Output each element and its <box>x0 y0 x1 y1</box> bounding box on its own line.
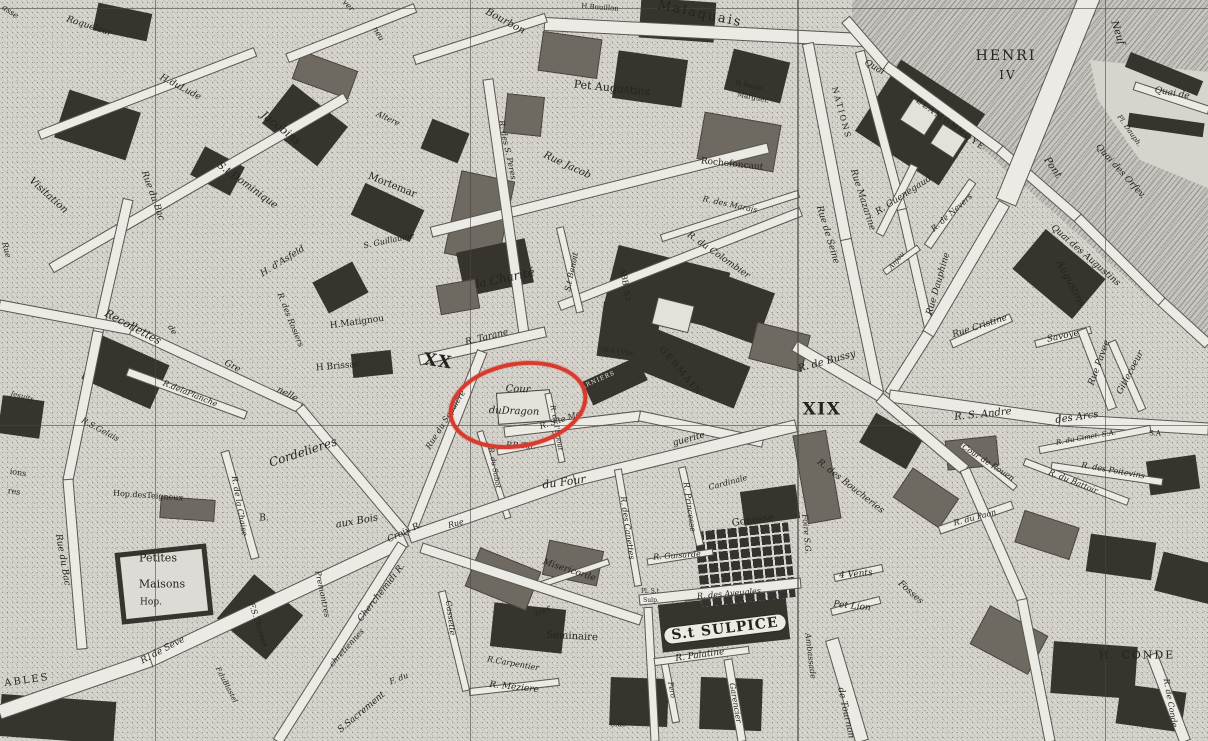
map-label: Mortemar <box>366 172 417 200</box>
map-label: duDragon <box>489 406 540 418</box>
map-label: Augustins <box>1054 259 1087 308</box>
map-label: XX <box>422 352 453 373</box>
map-label: Rue Cristine <box>951 314 1008 340</box>
map-label: Jacobins <box>259 109 303 147</box>
map-label: guerite <box>672 431 706 448</box>
map-label: Ambassade <box>803 633 817 680</box>
map-label: Rue <box>0 241 12 258</box>
map-label: de Tournon <box>835 687 855 740</box>
map-label: NATIONS <box>830 86 852 140</box>
map-canvas: asseRoquelaurH.duLudeVisitationRueS.t Do… <box>0 0 1208 741</box>
map-label: Cordelieres <box>268 435 339 468</box>
map-label: CHARNIERS <box>570 370 617 395</box>
map-label: du Four <box>542 474 587 491</box>
map-label: Garencier <box>728 682 743 723</box>
map-label: R. des Boucheries <box>815 458 885 516</box>
map-label: des Arcs <box>1055 410 1099 426</box>
map-label: Rue du Bac <box>139 170 165 222</box>
map-label: aux Bois <box>335 513 379 530</box>
map-label: Bourbon <box>483 7 526 36</box>
map-label: R. des Poitevins <box>1081 461 1146 480</box>
map-label: Rue du Sepulcre <box>425 389 467 450</box>
map-label: Rue Pavee <box>1088 339 1113 387</box>
map-label: R. du Paon <box>953 508 997 527</box>
map-label: H. d'Asfeld <box>259 245 306 279</box>
map-label: H. CONDE <box>1099 650 1176 661</box>
map-label: R. du Sabot <box>487 447 501 489</box>
map-label: S.t Benoit <box>564 252 580 293</box>
map-label: Cardinale <box>708 474 748 492</box>
map-label: Rue Dauphine <box>926 252 952 317</box>
map-label: XIX <box>803 402 842 419</box>
map-label: Fero <box>666 681 676 698</box>
map-label: R. Princesse <box>682 482 697 533</box>
map-label: R. S.te Mar <box>539 409 585 431</box>
map-label: ver <box>341 0 356 13</box>
map-label: Quai <box>862 59 885 78</box>
map-label: C.de <box>610 722 626 729</box>
map-label: Neuf <box>1108 20 1125 47</box>
map-label: S.Sacrement <box>337 691 387 735</box>
map-label: la Charité <box>474 266 536 290</box>
map-label: Foire S.G. <box>800 514 811 555</box>
map-label: ABLES <box>4 673 50 689</box>
map-label: Pl. S.t <box>641 589 659 595</box>
map-label: Gonesse <box>731 513 775 529</box>
map-label: R. du Cimet. S.A. <box>1056 429 1117 446</box>
map-label: Malaquais <box>656 0 743 29</box>
map-label: Cherchemidi R. <box>357 562 408 624</box>
map-label: 4 Vents <box>839 569 873 581</box>
map-label: R. Guisarde <box>653 550 701 561</box>
map-label: R. des S. Peres <box>497 120 517 181</box>
map-label: ABB. S.t <box>618 268 632 302</box>
map-label: Pont <box>1041 156 1062 180</box>
map-label: R. de Seve <box>140 636 187 667</box>
map-label: Rochefoncaut <box>700 157 763 173</box>
map-label: R. Palatine <box>675 648 725 664</box>
map-label: de <box>166 324 178 337</box>
map-label: Savoye <box>1046 329 1080 345</box>
map-label: R. de Conde <box>1162 678 1178 728</box>
map-label: Rue <box>447 518 464 530</box>
map-label: S. Guillaume <box>363 232 415 251</box>
map-label: H.duLude <box>158 73 202 102</box>
map-label: Pl. Dauph. <box>1116 114 1143 148</box>
labels-layer: asseRoquelaurH.duLudeVisitationRueS.t Do… <box>0 0 1208 741</box>
map-label: P.R.Tar. <box>506 441 536 451</box>
map-label: S.A <box>1149 431 1161 438</box>
map-label: Petites <box>139 553 177 564</box>
map-label: R. des Marais <box>702 195 758 214</box>
map-label: Anjou <box>888 251 907 271</box>
map-label: F. du <box>388 672 409 687</box>
map-label: R.S.Gelais <box>80 417 120 444</box>
map-label: H.Matignou <box>329 315 384 332</box>
map-label: Misericorde <box>541 558 596 584</box>
map-label: Marguer. <box>736 91 769 105</box>
map-label: Croix R. <box>386 521 423 545</box>
map-label: HENRI <box>976 49 1037 63</box>
map-label: Quai de <box>1154 86 1190 101</box>
map-label: F.S.Thomas <box>247 602 269 649</box>
map-label: S.t SULPICE <box>662 613 787 646</box>
map-label: Altere <box>375 110 401 128</box>
map-label: R. des Canettes <box>619 496 636 560</box>
map-label: Gitlecoeur <box>1116 350 1146 396</box>
map-label: Ch.S.t Vinc <box>600 347 634 358</box>
map-label: H.Bouillon <box>581 3 619 13</box>
map-label: Pet Lion <box>833 601 871 614</box>
map-label: Roquelaur <box>65 15 113 38</box>
map-label: Rue Mazarine <box>848 168 876 231</box>
map-label: Seminaire <box>546 631 598 644</box>
map-label: Rue de Seine <box>814 205 840 265</box>
map-label: R. Guenegaud <box>874 175 933 218</box>
map-label: Jesuits <box>10 391 35 404</box>
map-label: res <box>7 487 21 497</box>
map-label: Gre <box>222 359 241 375</box>
map-label: Fosses <box>896 579 925 606</box>
map-label: R.Carpentier <box>486 655 539 672</box>
map-label: Maisons <box>139 579 185 590</box>
map-label: R. S. Andre <box>954 407 1012 423</box>
map-label: GERMAIN <box>657 345 704 398</box>
map-label: Quai des Orfev. <box>1093 143 1147 201</box>
map-label: R. Tarane <box>465 328 510 347</box>
map-label: bier <box>534 604 552 618</box>
map-label: S.t Dominique <box>215 161 279 211</box>
map-label: R.delaPlanche <box>162 379 219 408</box>
map-label: B. <box>259 515 268 524</box>
map-label: nelle <box>275 386 299 404</box>
map-label: R. de Nevers <box>930 192 974 233</box>
map-label: Quai des Augustins <box>1049 224 1121 289</box>
map-label: chretiennes <box>328 628 366 669</box>
map-label: IV <box>999 69 1016 81</box>
map-label: DELAMONNOYE <box>908 92 987 152</box>
map-label: R. des Rosiers <box>275 292 304 349</box>
map-label: R. du Colombier <box>685 231 751 281</box>
map-label: Rue du Bac <box>53 534 71 587</box>
map-label: Pet Augustins <box>573 79 651 98</box>
map-label: Hop. <box>140 599 162 608</box>
map-label: R. Meziere <box>489 681 539 695</box>
map-label: Cassette <box>444 600 456 636</box>
map-label: R. de la Chaise <box>230 475 248 536</box>
map-label: Hop.desTeigneux <box>113 490 183 503</box>
map-label: R. de l'Egout <box>549 405 564 451</box>
map-label: Recollettes <box>103 308 163 347</box>
map-label: Sulp. <box>643 598 659 604</box>
map-label: Cour de Rouen <box>960 443 1015 483</box>
map-label: Visitation <box>27 176 70 216</box>
map-label: F.duBlastel <box>214 666 239 704</box>
map-label: asse <box>0 4 19 21</box>
map-label: Premontres <box>313 570 331 618</box>
map-label: R. des Aveugles <box>697 587 761 601</box>
map-label: Cour <box>505 384 530 395</box>
map-label: neu <box>371 25 385 42</box>
map-label: H Brissac <box>316 361 361 374</box>
map-label: Rue Jacob <box>542 151 593 182</box>
map-label: R. de Bussy <box>797 350 857 375</box>
map-label: R. du Battoir <box>1047 469 1098 496</box>
map-label: ions <box>9 468 27 478</box>
